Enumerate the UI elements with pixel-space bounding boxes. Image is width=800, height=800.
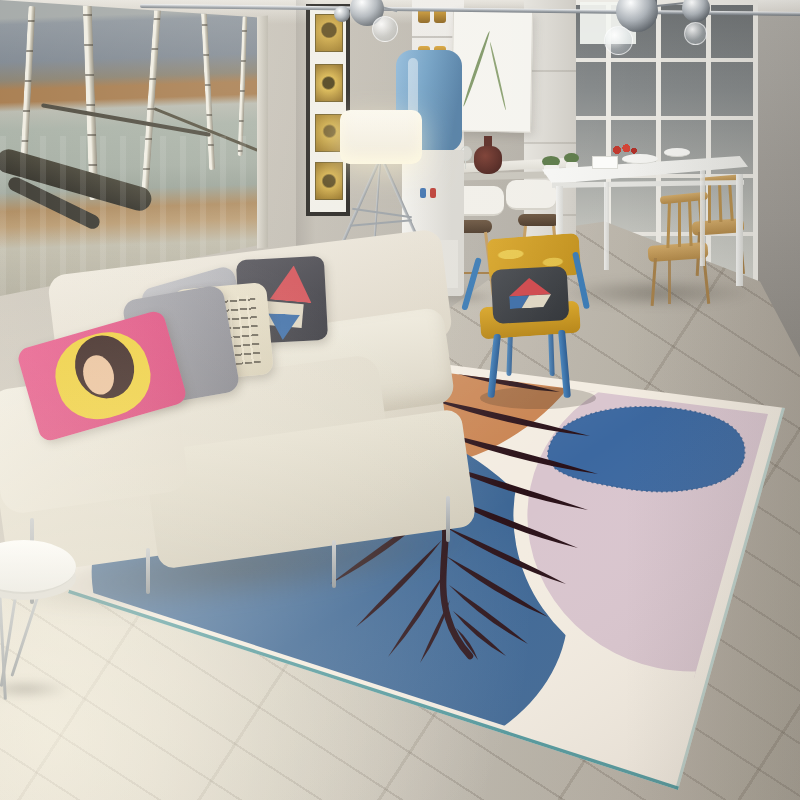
accent-chair-cushion <box>491 266 570 324</box>
triangle-motif <box>508 277 552 309</box>
living-room-photo <box>0 0 800 800</box>
sofa-leg <box>446 496 450 542</box>
sofa-leg <box>332 540 336 588</box>
sofa-leg <box>146 548 150 594</box>
pillow-red-patch <box>270 264 315 304</box>
